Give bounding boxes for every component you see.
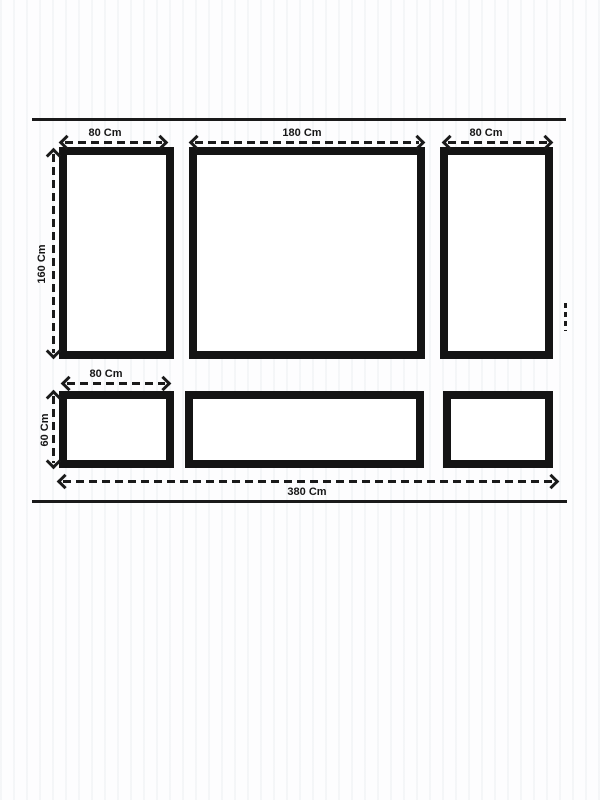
- dim-arrow-top-left-width: [60, 136, 167, 149]
- dim-label-total-width: 380 Cm: [287, 486, 326, 498]
- dim-arrow-top-right-width: [443, 136, 552, 149]
- bottom-boundary-line: [32, 500, 567, 503]
- dashed-dimension-line: [448, 141, 547, 144]
- arrowhead-right-icon: [544, 474, 560, 490]
- dashed-dimension-line: [52, 154, 55, 353]
- right-edge-dimension-fragment: [564, 303, 567, 331]
- panel-top-middle: [189, 147, 425, 359]
- dashed-dimension-line: [195, 141, 419, 144]
- top-boundary-line: [32, 118, 566, 121]
- dim-arrow-top-middle-width: [190, 136, 424, 149]
- dashed-dimension-line: [65, 141, 162, 144]
- arrowhead-right-icon: [153, 135, 169, 151]
- arrowhead-down-icon: [46, 454, 62, 470]
- dashed-dimension-line: [63, 480, 553, 483]
- dim-arrow-bottom-row-height: [47, 391, 60, 468]
- dimension-diagram: 80 Cm 180 Cm 80 Cm 160 Cm 80 Cm 60 Cm: [0, 0, 600, 800]
- dim-arrow-bottom-left-width: [62, 377, 170, 390]
- panel-bottom-right: [443, 391, 553, 468]
- panel-bottom-middle: [185, 391, 424, 468]
- arrowhead-down-icon: [46, 344, 62, 360]
- arrowhead-right-icon: [538, 135, 554, 151]
- panel-bottom-left: [59, 391, 174, 468]
- panel-top-left: [59, 147, 174, 359]
- dashed-dimension-line: [67, 382, 165, 385]
- arrowhead-right-icon: [156, 376, 172, 392]
- dim-arrow-top-row-height: [47, 149, 60, 358]
- panel-top-right: [440, 147, 553, 359]
- arrowhead-right-icon: [410, 135, 426, 151]
